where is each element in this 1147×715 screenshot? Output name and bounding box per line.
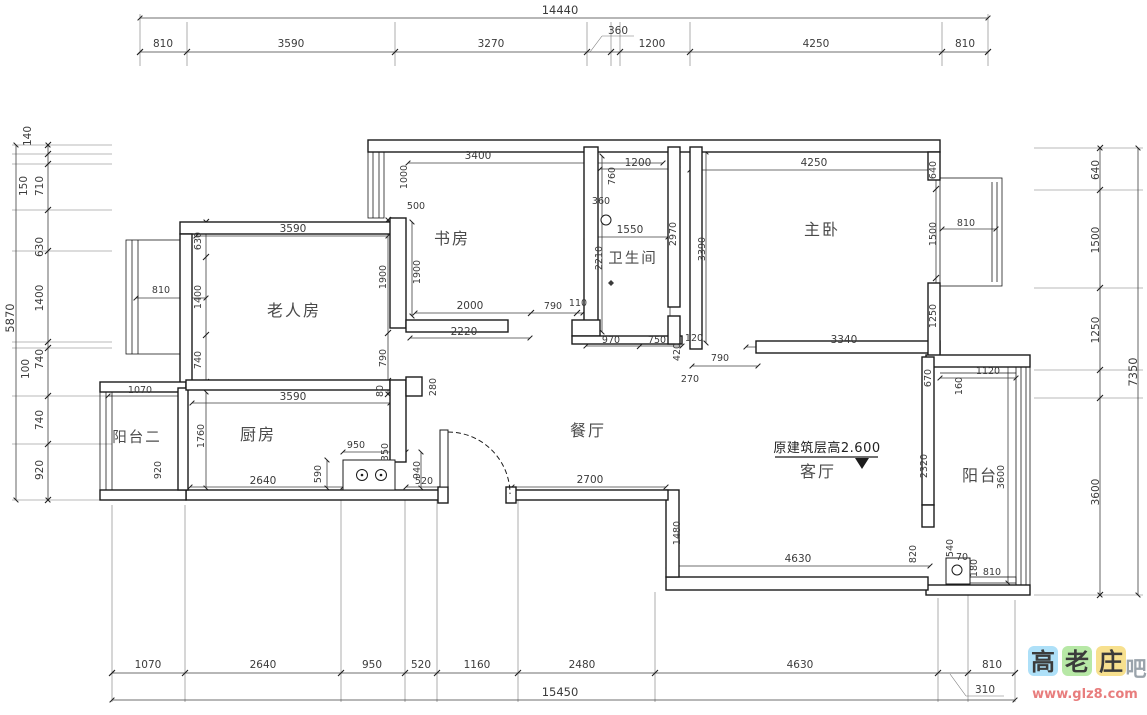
door-swing-arc [448,432,510,494]
wall-segment [922,505,934,527]
dim-top-total: 14440 [542,3,579,17]
dim-left-seg-8: 920 [34,460,46,480]
floor-plan-page: 书房 卫生间 主卧 老人房 厨房 阳台二 餐厅 客厅 阳台 原建筑层高2.600… [0,0,1147,715]
room-label-study: 书房 [434,229,470,248]
room-label-master: 主卧 [804,220,840,239]
dim-study-counter: 2220 [451,326,478,338]
dim-kitchen-column: 280 [428,378,439,396]
dim-bath-mid: 1550 [617,224,644,236]
dim-master-right-c: 1250 [928,304,939,328]
dim-elder-wall-a: 630 [193,232,204,250]
dim-left-seg-6: 740 [34,349,46,369]
wall-segment [100,490,186,500]
watermark: 高 老 庄 吧 www.glz8.com [1028,646,1147,702]
watermark-char-3: 庄 [1099,648,1123,676]
dim-right-seg-0: 640 [1090,160,1102,180]
wall-segment [510,490,668,500]
room-label-dining: 餐厅 [570,421,606,440]
wall-segment [186,380,390,390]
wall-segment [178,388,188,490]
dim-bath-door: 790 [711,353,729,364]
wall-segment [572,320,600,336]
dim-left-seg-5: 100 [20,359,32,379]
dim-master-below-c: 160 [954,377,965,395]
dim-top-seg-4: 1200 [639,38,666,50]
door-jamb [506,487,516,503]
dim-living-window: 810 [983,567,1001,578]
dim-bath-floor-b: 750 [648,335,666,346]
dim-kitchen-counter: 950 [347,440,365,451]
dim-living-balcony-wall: 2320 [919,454,930,478]
wall-segment [926,585,1030,595]
dim-master-left-h: 3390 [697,237,708,261]
dim-master-right-b: 1500 [928,222,939,246]
dim-elder-bottom: 3590 [280,391,307,403]
room-label-living: 客厅 [800,462,836,481]
dim-bath-floor-a: 970 [602,335,620,346]
dim-kitchen-inner-height: 1760 [196,424,207,448]
dim-elder-right-b: 790 [378,349,389,367]
dim-left-seg-4: 1400 [34,285,46,312]
dim-master-below-a: 670 [923,369,934,387]
dim-study-jog: 500 [407,201,425,212]
dim-bath-duct-w: 360 [592,196,610,207]
dim-master-bottom: 3340 [831,334,858,346]
dim-bottom-seg-2: 950 [362,659,382,671]
dim-right-seg-3: 3600 [1090,479,1102,506]
kitchen-counter [343,460,395,490]
dim-top-seg-5: 4250 [803,38,830,50]
door-jamb [438,487,448,503]
bath-drain [601,215,611,225]
dim-study-floor-c: 110 [569,298,587,309]
dim-right-seg-1: 1500 [1090,227,1102,254]
dim-bath-hall: 270 [681,374,699,385]
level-marker-triangle [855,458,869,469]
bath-marker [608,280,614,286]
dim-master-below-b: 1120 [976,366,1000,377]
dim-top-seg-6: 810 [955,38,975,50]
dim-bath-step-h: 420 [672,343,683,361]
dim-master-window: 810 [957,218,975,229]
dim-top-seg-0: 810 [153,38,173,50]
wall-segment [180,234,192,384]
dim-master-right-a: 640 [928,161,939,179]
dim-kitchen-right-a: 590 [313,465,324,483]
dim-study-floor-b: 790 [544,301,562,312]
wall-segment [584,147,598,323]
room-label-bath: 卫生间 [608,250,658,267]
dim-bottom-extra: 310 [975,684,995,696]
dim-study-floor-a: 2000 [457,300,484,312]
watermark-url: www.glz8.com [1032,687,1138,702]
dim-bottom-seg-1: 2640 [250,659,277,671]
window-balcony [1016,355,1030,595]
dim-study-top: 3400 [465,150,492,162]
wall-segment [186,490,444,500]
dim-right-seg-2: 1250 [1090,317,1102,344]
dim-bath-step-w: 120 [685,333,703,344]
height-note: 原建筑层高2.600 [773,440,880,456]
dim-bath-right-h: 2970 [668,222,679,246]
dim-top-seg-3: 360 [608,25,628,37]
dim-bottom-seg-0: 1070 [135,659,162,671]
dim-bottom-seg-7: 810 [982,659,1002,671]
window-study [368,152,384,218]
floor-plan-canvas: 书房 卫生间 主卧 老人房 厨房 阳台二 餐厅 客厅 阳台 原建筑层高2.600… [0,0,1147,715]
dim-living-corner-c: 70 [956,552,968,563]
dim-kitchen-right-b: 350 [380,443,391,461]
windows [100,152,1030,595]
dim-left-seg-3: 630 [34,237,46,257]
dim-study-height-upper: 1000 [399,165,410,189]
dim-living-corner-d: 180 [969,559,980,577]
dim-living-corner-a: 820 [908,545,919,563]
dim-elder-top: 3590 [280,223,307,235]
wall-segment [668,316,680,344]
room-label-balcony2: 阳台二 [112,429,162,446]
bay-window-elder [126,240,182,354]
wall-segment [390,380,406,462]
watermark-char-2: 老 [1065,648,1089,676]
dim-left-total: 5870 [3,303,17,332]
dim-elder-window: 810 [152,285,170,296]
floor-drain [952,565,962,575]
dim-bath-duct-h: 760 [607,167,618,185]
column [406,377,422,396]
dim-bath-left-h: 2210 [594,246,605,270]
dim-dining-step: 1480 [672,521,683,545]
dim-bottom-seg-5: 2480 [569,659,596,671]
wall-segment [666,577,928,590]
dim-elder-wall-b: 1400 [193,285,204,309]
dim-bottom-seg-4: 1160 [464,659,491,671]
dim-bottom-seg-6: 4630 [787,659,814,671]
dim-elder-right-c: 80 [375,385,386,397]
dim-dining-width: 2700 [577,474,604,486]
dim-balcony-height: 3600 [996,465,1007,489]
room-label-balcony: 阳台 [962,466,998,485]
door-leaf [440,430,448,487]
dim-kitchen-balcony-height: 920 [153,461,164,479]
watermark-char-1: 高 [1031,648,1055,676]
dim-kitchen-balcony-width: 1070 [128,385,152,396]
dim-master-top: 4250 [801,157,828,169]
walls [100,140,1030,595]
dim-elder-right-a: 1900 [378,265,389,289]
dim-elder-wall-c: 740 [193,351,204,369]
dim-bottom-total: 15450 [542,685,579,699]
dim-top-seg-2: 3270 [478,38,505,50]
dim-study-height: 1900 [412,260,423,284]
wall-segment [390,218,406,328]
dim-kitchen-floor: 2640 [250,475,277,487]
dim-living-width: 4630 [785,553,812,565]
dim-right-total: 7350 [1126,357,1140,386]
dim-left-seg-2: 710 [34,176,46,196]
dim-left-seg-0: 140 [22,126,34,146]
dim-bottom-seg-3: 520 [411,659,431,671]
room-label-kitchen: 厨房 [240,425,276,444]
watermark-char-4: 吧 [1126,657,1147,681]
room-label-elder: 老人房 [267,301,321,320]
wall-segment [368,140,940,152]
dim-left-seg-7: 740 [34,410,46,430]
dim-left-seg-1: 150 [18,176,30,196]
bay-window-master [940,178,1002,286]
dim-bath-top: 1200 [625,157,652,169]
dim-kitchen-passage: 520 [415,476,433,487]
dim-top-seg-1: 3590 [278,38,305,50]
dim-living-corner-b: 540 [945,539,956,557]
